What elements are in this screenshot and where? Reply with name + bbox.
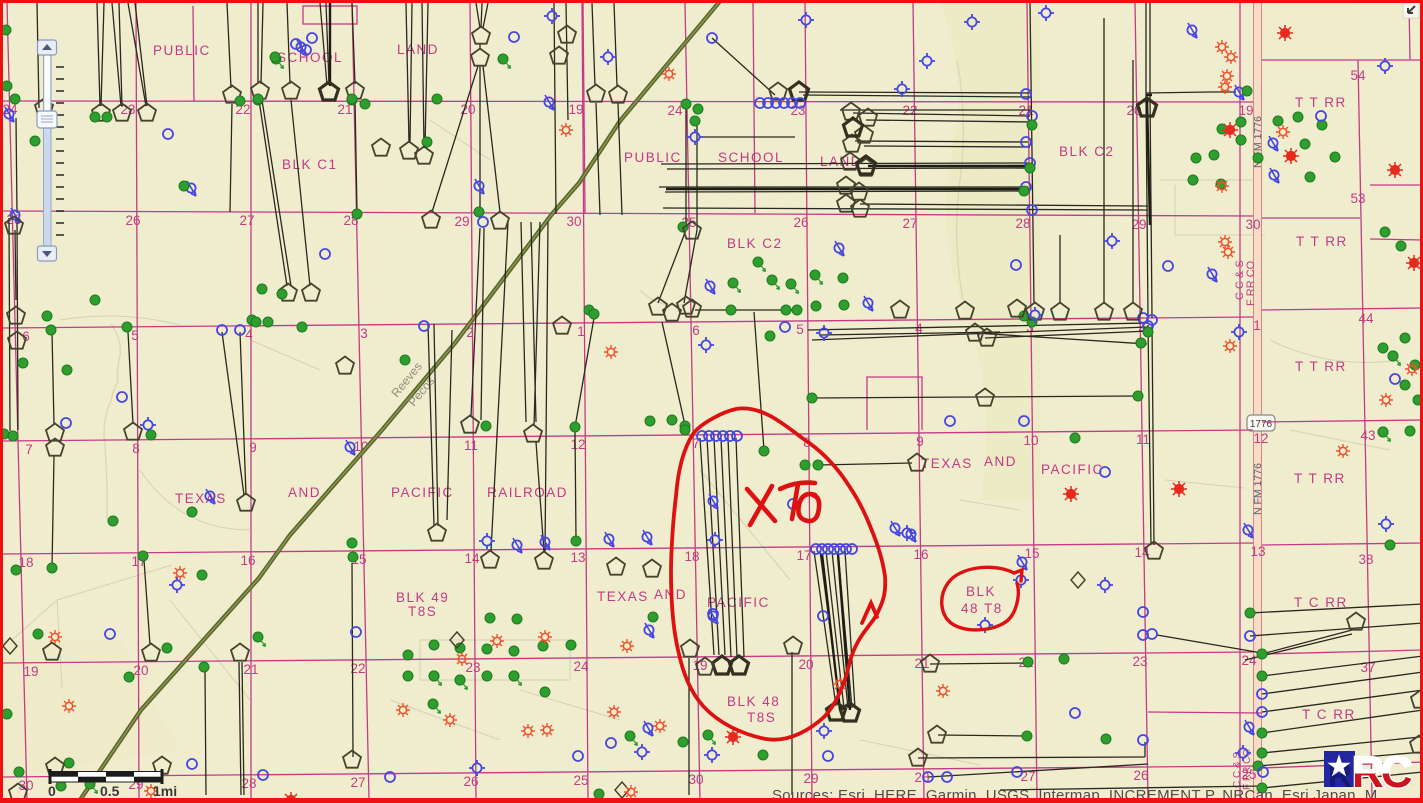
svg-text:TEXAS: TEXAS — [921, 456, 973, 471]
svg-text:0: 0 — [48, 783, 56, 799]
svg-text:AND: AND — [288, 485, 321, 500]
svg-text:11: 11 — [1136, 432, 1150, 447]
svg-text:27: 27 — [902, 216, 917, 231]
svg-text:30: 30 — [1245, 217, 1260, 232]
svg-text:18: 18 — [684, 549, 699, 564]
svg-text:LAND: LAND — [397, 42, 439, 57]
svg-text:21: 21 — [243, 662, 258, 677]
svg-text:PUBLIC: PUBLIC — [153, 43, 211, 58]
svg-text:7: 7 — [692, 436, 700, 451]
svg-text:23: 23 — [790, 103, 805, 118]
svg-text:BLK C1: BLK C1 — [282, 157, 338, 172]
svg-text:4: 4 — [245, 327, 253, 342]
svg-text:29: 29 — [454, 214, 469, 229]
svg-text:12: 12 — [1253, 431, 1268, 446]
svg-text:T8S: T8S — [747, 710, 776, 725]
svg-text:29: 29 — [1131, 217, 1146, 232]
svg-text:23: 23 — [1132, 654, 1147, 669]
svg-text:27: 27 — [350, 775, 365, 790]
svg-text:T T RR: T T RR — [1295, 95, 1347, 110]
svg-text:16: 16 — [913, 547, 928, 562]
svg-text:43: 43 — [1360, 428, 1375, 443]
svg-text:T T RR: T T RR — [1294, 471, 1346, 486]
svg-text:PUBLIC: PUBLIC — [624, 150, 682, 165]
svg-text:7: 7 — [25, 442, 33, 457]
svg-text:20: 20 — [798, 657, 813, 672]
svg-text:23: 23 — [465, 660, 480, 675]
svg-text:38: 38 — [1358, 552, 1373, 567]
svg-text:TEXAS: TEXAS — [175, 491, 227, 506]
svg-text:24: 24 — [573, 659, 589, 674]
svg-text:9: 9 — [249, 440, 257, 455]
svg-text:54: 54 — [1350, 68, 1366, 83]
svg-text:1mi: 1mi — [153, 783, 177, 799]
svg-text:TEXAS: TEXAS — [597, 589, 649, 604]
svg-text:27: 27 — [239, 213, 254, 228]
svg-text:RC: RC — [1352, 748, 1412, 797]
svg-text:SCHOOL: SCHOOL — [718, 150, 784, 165]
svg-text:BLK 49: BLK 49 — [396, 590, 449, 605]
svg-text:BLK 48: BLK 48 — [727, 694, 780, 709]
svg-text:PACIFIC: PACIFIC — [1041, 462, 1104, 477]
svg-text:13: 13 — [570, 550, 585, 565]
svg-text:6: 6 — [692, 323, 700, 338]
svg-text:14: 14 — [464, 551, 480, 566]
svg-text:0.5: 0.5 — [100, 783, 120, 799]
svg-text:5: 5 — [131, 328, 139, 343]
svg-text:1776: 1776 — [1250, 419, 1273, 430]
svg-text:T C RR: T C RR — [1302, 707, 1356, 722]
svg-text:26: 26 — [1133, 768, 1148, 783]
svg-text:19: 19 — [568, 102, 583, 117]
svg-text:28: 28 — [1015, 216, 1030, 231]
svg-text:BLK C2: BLK C2 — [727, 236, 783, 251]
svg-text:11: 11 — [464, 438, 478, 453]
svg-text:1: 1 — [577, 324, 585, 339]
svg-text:15: 15 — [1024, 546, 1039, 561]
svg-text:26: 26 — [463, 774, 478, 789]
svg-text:53: 53 — [1350, 191, 1365, 206]
svg-text:13: 13 — [1250, 544, 1265, 559]
svg-text:BLK C2: BLK C2 — [1059, 144, 1115, 159]
svg-text:8: 8 — [132, 441, 140, 456]
svg-text:9: 9 — [916, 434, 924, 449]
svg-text:N FM 1776: N FM 1776 — [1252, 463, 1264, 515]
svg-text:44: 44 — [1358, 311, 1374, 326]
svg-text:PACIFIC: PACIFIC — [391, 485, 454, 500]
svg-text:1: 1 — [1253, 318, 1261, 333]
svg-text:20: 20 — [133, 663, 148, 678]
svg-text:AND: AND — [984, 454, 1017, 469]
svg-text:48 T8: 48 T8 — [961, 601, 1003, 616]
svg-text:RAILROAD: RAILROAD — [487, 485, 568, 500]
svg-text:26: 26 — [125, 213, 140, 228]
svg-text:26: 26 — [793, 215, 808, 230]
svg-text:5: 5 — [796, 322, 804, 337]
svg-text:19: 19 — [1238, 103, 1253, 118]
svg-text:F RR CO: F RR CO — [1245, 260, 1257, 306]
svg-text:T T RR: T T RR — [1296, 234, 1348, 249]
svg-text:BLK: BLK — [966, 584, 996, 599]
svg-text:19: 19 — [23, 664, 38, 679]
svg-text:30: 30 — [566, 214, 581, 229]
svg-text:17: 17 — [796, 548, 811, 563]
svg-text:3: 3 — [360, 326, 368, 341]
svg-text:T T RR: T T RR — [1295, 359, 1347, 374]
svg-text:12: 12 — [570, 437, 585, 452]
svg-text:16: 16 — [240, 553, 255, 568]
svg-text:10: 10 — [1023, 433, 1038, 448]
svg-text:29: 29 — [803, 771, 818, 786]
svg-text:T8S: T8S — [408, 604, 437, 619]
svg-text:30: 30 — [688, 772, 703, 787]
svg-text:24: 24 — [1241, 653, 1257, 668]
svg-text:25: 25 — [573, 773, 588, 788]
